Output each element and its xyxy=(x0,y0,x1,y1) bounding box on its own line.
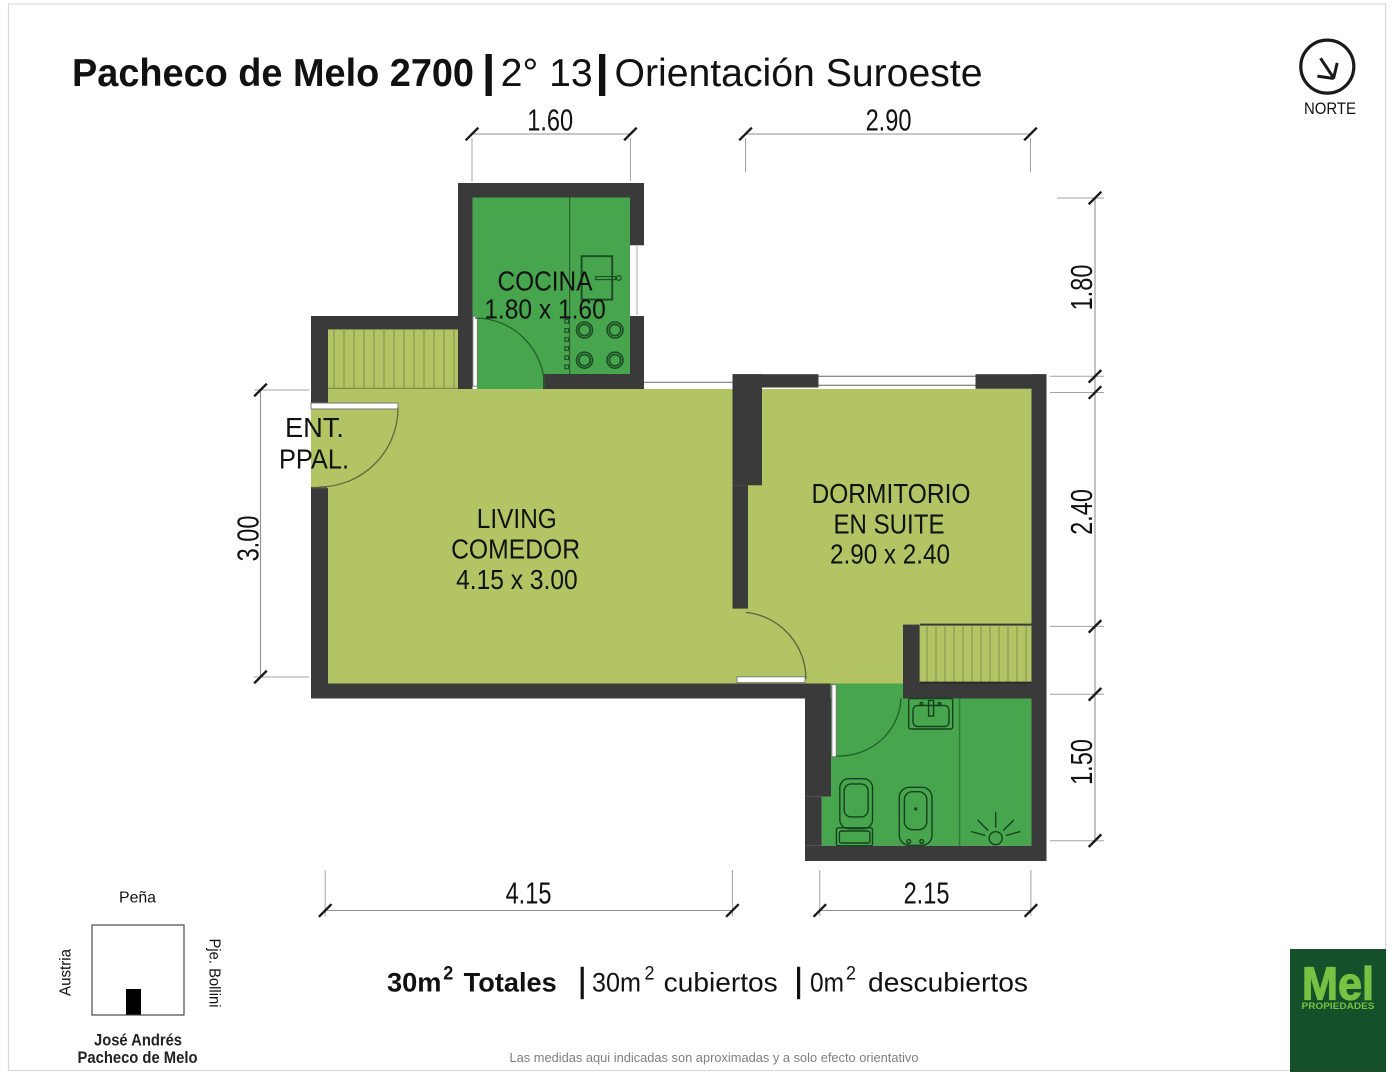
svg-text:LIVING: LIVING xyxy=(477,503,557,534)
svg-text:José Andrés: José Andrés xyxy=(94,1032,182,1050)
svg-text:30m: 30m xyxy=(387,967,442,997)
svg-text:2° 13: 2° 13 xyxy=(501,52,593,95)
svg-text:4.15 x 3.00: 4.15 x 3.00 xyxy=(456,564,578,595)
svg-text:DORMITORIO: DORMITORIO xyxy=(812,478,971,509)
svg-text:Las medidas aqui indicadas son: Las medidas aqui indicadas son aproximad… xyxy=(510,1050,919,1065)
svg-text:2.15: 2.15 xyxy=(904,875,950,910)
svg-text:1.50: 1.50 xyxy=(1064,739,1099,785)
svg-text:Pacheco de Melo: Pacheco de Melo xyxy=(78,1049,198,1067)
svg-text:2: 2 xyxy=(443,964,453,985)
svg-text:Orientación Suroeste: Orientación Suroeste xyxy=(615,52,983,95)
svg-text:EN SUITE: EN SUITE xyxy=(834,509,945,540)
svg-text:3.00: 3.00 xyxy=(230,516,265,562)
svg-text:Totales: Totales xyxy=(464,967,557,997)
svg-text:2: 2 xyxy=(846,964,856,985)
svg-text:2.90 x 2.40: 2.90 x 2.40 xyxy=(830,539,950,570)
svg-text:Pacheco de Melo 2700: Pacheco de Melo 2700 xyxy=(72,52,474,95)
svg-text:30m: 30m xyxy=(592,967,641,997)
svg-text:descubiertos: descubiertos xyxy=(868,967,1028,997)
svg-text:2: 2 xyxy=(645,964,655,985)
svg-text:4.15: 4.15 xyxy=(506,875,552,910)
svg-text:Peña: Peña xyxy=(119,890,156,907)
svg-text:Austria: Austria xyxy=(58,949,75,996)
svg-text:1.80: 1.80 xyxy=(1064,265,1099,311)
svg-text:2.90: 2.90 xyxy=(866,102,912,137)
svg-text:Pje. Bollini: Pje. Bollini xyxy=(206,939,223,1008)
svg-text:COCINA: COCINA xyxy=(498,266,594,297)
svg-text:PPAL.: PPAL. xyxy=(279,444,349,475)
svg-text:ENT.: ENT. xyxy=(285,412,344,443)
svg-text:0m: 0m xyxy=(810,967,844,997)
svg-text:1.60: 1.60 xyxy=(527,102,573,137)
svg-text:PROPIEDADES: PROPIEDADES xyxy=(1302,1001,1376,1012)
svg-text:NORTE: NORTE xyxy=(1304,100,1356,118)
svg-text:cubiertos: cubiertos xyxy=(664,967,778,997)
svg-text:2.40: 2.40 xyxy=(1064,489,1099,535)
svg-text:COMEDOR: COMEDOR xyxy=(451,534,580,565)
svg-text:1.80 x 1.60: 1.80 x 1.60 xyxy=(484,294,606,325)
